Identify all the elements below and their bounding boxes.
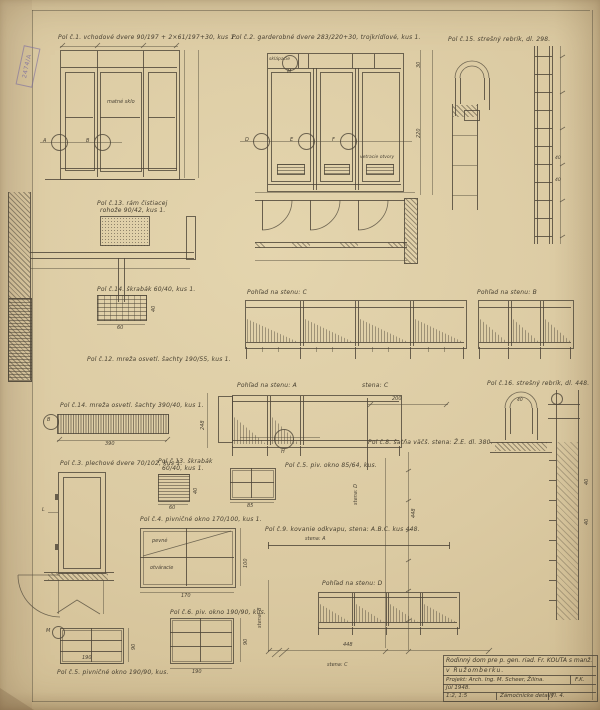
title-block: Rodinný dom pre p. gen. riad. Fr. KOUTA … (0, 0, 600, 710)
project-location: v Ružomberku. (446, 667, 504, 674)
architect: Projekt: Arch. Ing. M. Scheer, Žilina. (446, 677, 544, 683)
title-block-line (570, 675, 571, 684)
initials: F.K. (575, 677, 585, 683)
project-title: Rodinný dom pre p. gen. riad. Fr. KOUTA … (446, 657, 592, 664)
title-block-line (496, 692, 497, 700)
title-block-line (443, 675, 596, 676)
sheet-subject: Zámočnícke detaily (500, 693, 554, 699)
date: Júl 1948. (446, 685, 470, 691)
sheet-number: Tl. 4. (551, 693, 565, 699)
blueprint-sheet: 2474/A Pol č.1. vchodové dvere 90/197 + … (0, 0, 600, 710)
scale: 1:2, 1:5 (446, 693, 467, 699)
